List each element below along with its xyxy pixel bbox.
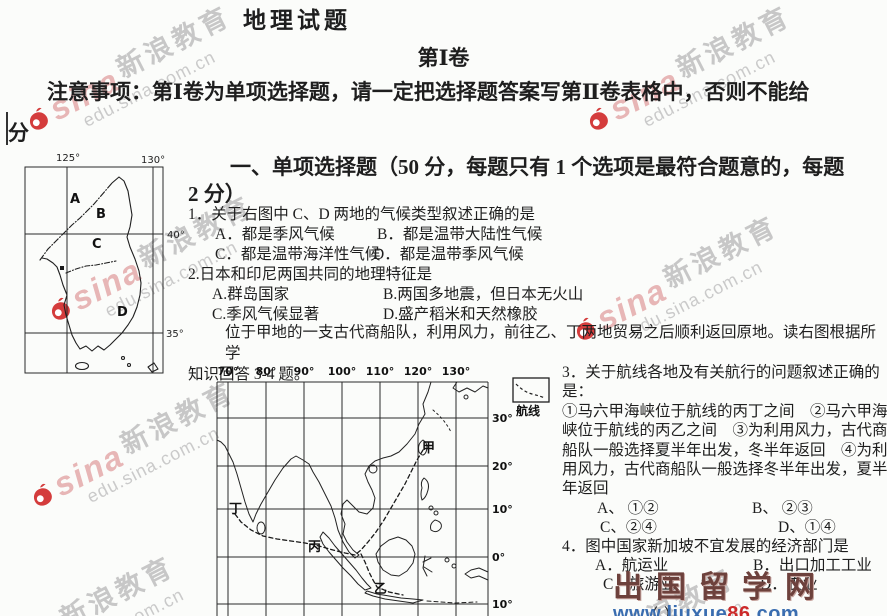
- sumatra-island: [320, 532, 371, 590]
- korea-dmz-line: [66, 261, 116, 273]
- small-island: [128, 364, 131, 367]
- southeast-asia-route-map: 70° 80° 90° 100° 110° 120° 130° 30° 20° …: [195, 362, 560, 616]
- sea-lon-label: 130°: [442, 365, 470, 378]
- new-guinea-partial: [465, 568, 488, 580]
- legend-route-line: [516, 384, 545, 398]
- korea-point-c: C: [92, 237, 102, 252]
- korea-lon-label: 130°: [141, 155, 165, 166]
- korea-map-grid: [25, 167, 163, 373]
- sea-lat-label: 20°: [492, 460, 513, 473]
- asia-mainland-coastline: [217, 382, 431, 558]
- sea-lon-label: 80°: [256, 365, 277, 378]
- mindanao-island: [431, 520, 442, 532]
- question-1-options-row: C．都是温带海洋性气候 D．都是温带季风气候: [188, 245, 887, 265]
- korea-point-b: B: [96, 207, 106, 222]
- sri-lanka-island: [257, 522, 265, 534]
- question-2-stem: 2.日本和印尼两国共同的地理特征是: [188, 265, 887, 285]
- sea-lon-label: 70°: [218, 365, 239, 378]
- margin-bar: [6, 112, 8, 145]
- question-2-options-row: A.群岛国家 B.两国多地震，但日本无火山: [188, 285, 887, 305]
- option-c: C．都是温带海洋性气候: [215, 245, 380, 265]
- visayas-island: [434, 511, 438, 515]
- korea-coastline: [42, 177, 141, 351]
- option-a: A、 ①②: [597, 499, 659, 518]
- japan-small-island: [464, 395, 468, 399]
- sulawesi-island: [423, 556, 432, 576]
- url-prefix: www.liuxue: [613, 603, 727, 616]
- section-heading-line-1: 一、单项选择题（50 分，每题只有 1 个选项是最符合题意的，每题: [188, 154, 887, 181]
- sina-watermark: sina 新浪教育 edu.sina.com.cn: [0, 553, 191, 616]
- watermark-cn: 新浪教育: [56, 553, 179, 616]
- volume-heading: 第Ⅰ卷: [0, 42, 887, 72]
- option-d: D．都是温带季风气候: [373, 245, 524, 265]
- sea-lon-label: 100°: [328, 365, 356, 378]
- liuxue86-logo: 出国留学网 www.liuxue86.com: [613, 573, 875, 616]
- option-b: B．都是温带大陆性气候: [377, 225, 542, 245]
- section-heading: 一、单项选择题（50 分，每题只有 1 个选项是最符合题意的，每题 2 分）: [188, 154, 887, 208]
- exam-paper-page: sina 新浪教育 edu.sina.com.cn sina 新浪教育 edu.…: [0, 0, 887, 616]
- sea-lat-label: 10°: [492, 598, 513, 611]
- page-title: 地理试题: [243, 1, 351, 35]
- sina-eye-icon: [26, 480, 58, 512]
- sea-lat-label: 10°: [492, 503, 513, 516]
- question-3-stem: 3．关于航线各地及有关航行的问题叙述正确的是：: [562, 363, 887, 402]
- route-legend: 航线: [513, 378, 549, 418]
- korea-lat-label: 40°: [167, 230, 185, 241]
- sea-point-yi: 乙: [374, 582, 387, 597]
- option-a: A．都是季风气候: [215, 225, 335, 245]
- question-1-stem: 1．关于右图中 C、D 两地的气候类型叙述正确的是: [188, 205, 887, 225]
- sea-lon-label: 120°: [404, 365, 432, 378]
- liuxue86-site-name: 出国留学网: [613, 573, 875, 603]
- korea-peninsula-map: 125° 130° 40° 35° A B C D: [20, 145, 190, 380]
- legend-label: 航线: [516, 403, 540, 418]
- watermark-brand: sina: [48, 439, 129, 502]
- sea-map-grid: [217, 382, 488, 616]
- sea-lat-label: 30°: [492, 412, 513, 425]
- korea-point-d: D: [117, 305, 128, 320]
- watermark-domain: edu.sina.com.cn: [48, 582, 191, 616]
- notice-paragraph: 注意事项：第Ⅰ卷为单项选择题，请一定把选择题答案写第Ⅱ卷表格中，否则不能给 分: [8, 72, 870, 154]
- questions-3-4-column: 3．关于航线各地及有关航行的问题叙述正确的是： ①马六甲海峡位于航线的丙丁之间 …: [562, 363, 887, 594]
- question-1-options-row: A．都是季风气候 B．都是温带大陆性气候: [188, 225, 887, 245]
- lesser-sunda-islands: [427, 601, 477, 603]
- sea-point-bing: 丙: [308, 540, 321, 555]
- section-heading-line-2: 2 分）: [188, 181, 887, 208]
- url-suffix: .com: [751, 603, 800, 616]
- japan-islands: [453, 382, 488, 392]
- intro-line-1: 位于甲地的一支古代商船队，利用风力，前往乙、丁两地贸易之后顺利返回原地。读右图根…: [188, 322, 887, 364]
- korea-lon-label: 125°: [56, 153, 80, 164]
- sea-point-jia: 甲: [422, 441, 435, 456]
- sea-lon-label: 90°: [294, 365, 315, 378]
- url-number: 86: [727, 603, 750, 616]
- sea-lon-label: 110°: [366, 365, 394, 378]
- ryukyu-arc: [433, 410, 451, 432]
- liuxue86-url: www.liuxue86.com: [613, 604, 875, 616]
- question-1: 1．关于右图中 C、D 两地的气候类型叙述正确的是 A．都是季风气候 B．都是温…: [188, 205, 887, 265]
- option-b: B、 ②③: [752, 499, 813, 518]
- sea-lat-label: 0°: [492, 551, 505, 564]
- option-b: B.两国多地震，但日本无火山: [383, 285, 583, 305]
- notice-line-1: 注意事项：第Ⅰ卷为单项选择题，请一定把选择题答案写第Ⅱ卷表格中，否则不能给: [8, 72, 870, 113]
- question-4-stem: 4．图中国家新加坡不宜发展的经济部门是: [562, 537, 887, 556]
- small-island: [122, 357, 125, 360]
- question-3-body: ①马六甲海峡位于航线的丙丁之间 ②马六甲海峡位于航线的丙乙之间 ③为利用风力，古…: [562, 402, 887, 499]
- korea-point-a: A: [70, 192, 80, 207]
- option-d: D、①④: [778, 518, 836, 537]
- city-marker: [60, 266, 64, 270]
- moluccas-island: [452, 564, 456, 568]
- question-3-options-row: C、②④ D、①④: [562, 518, 887, 537]
- sea-point-ding: 丁: [229, 502, 242, 517]
- korea-lat-label: 35°: [166, 329, 184, 340]
- option-c: C、②④: [600, 518, 657, 537]
- jeju-island: [76, 363, 89, 370]
- moluccas-island: [445, 558, 449, 562]
- luzon-island: [421, 478, 429, 500]
- option-a: A.群岛国家: [212, 285, 289, 305]
- question-2: 2.日本和印尼两国共同的地理特征是 A.群岛国家 B.两国多地震，但日本无火山 …: [188, 265, 887, 325]
- question-3-options-row: A、 ①② B、 ②③: [562, 499, 887, 518]
